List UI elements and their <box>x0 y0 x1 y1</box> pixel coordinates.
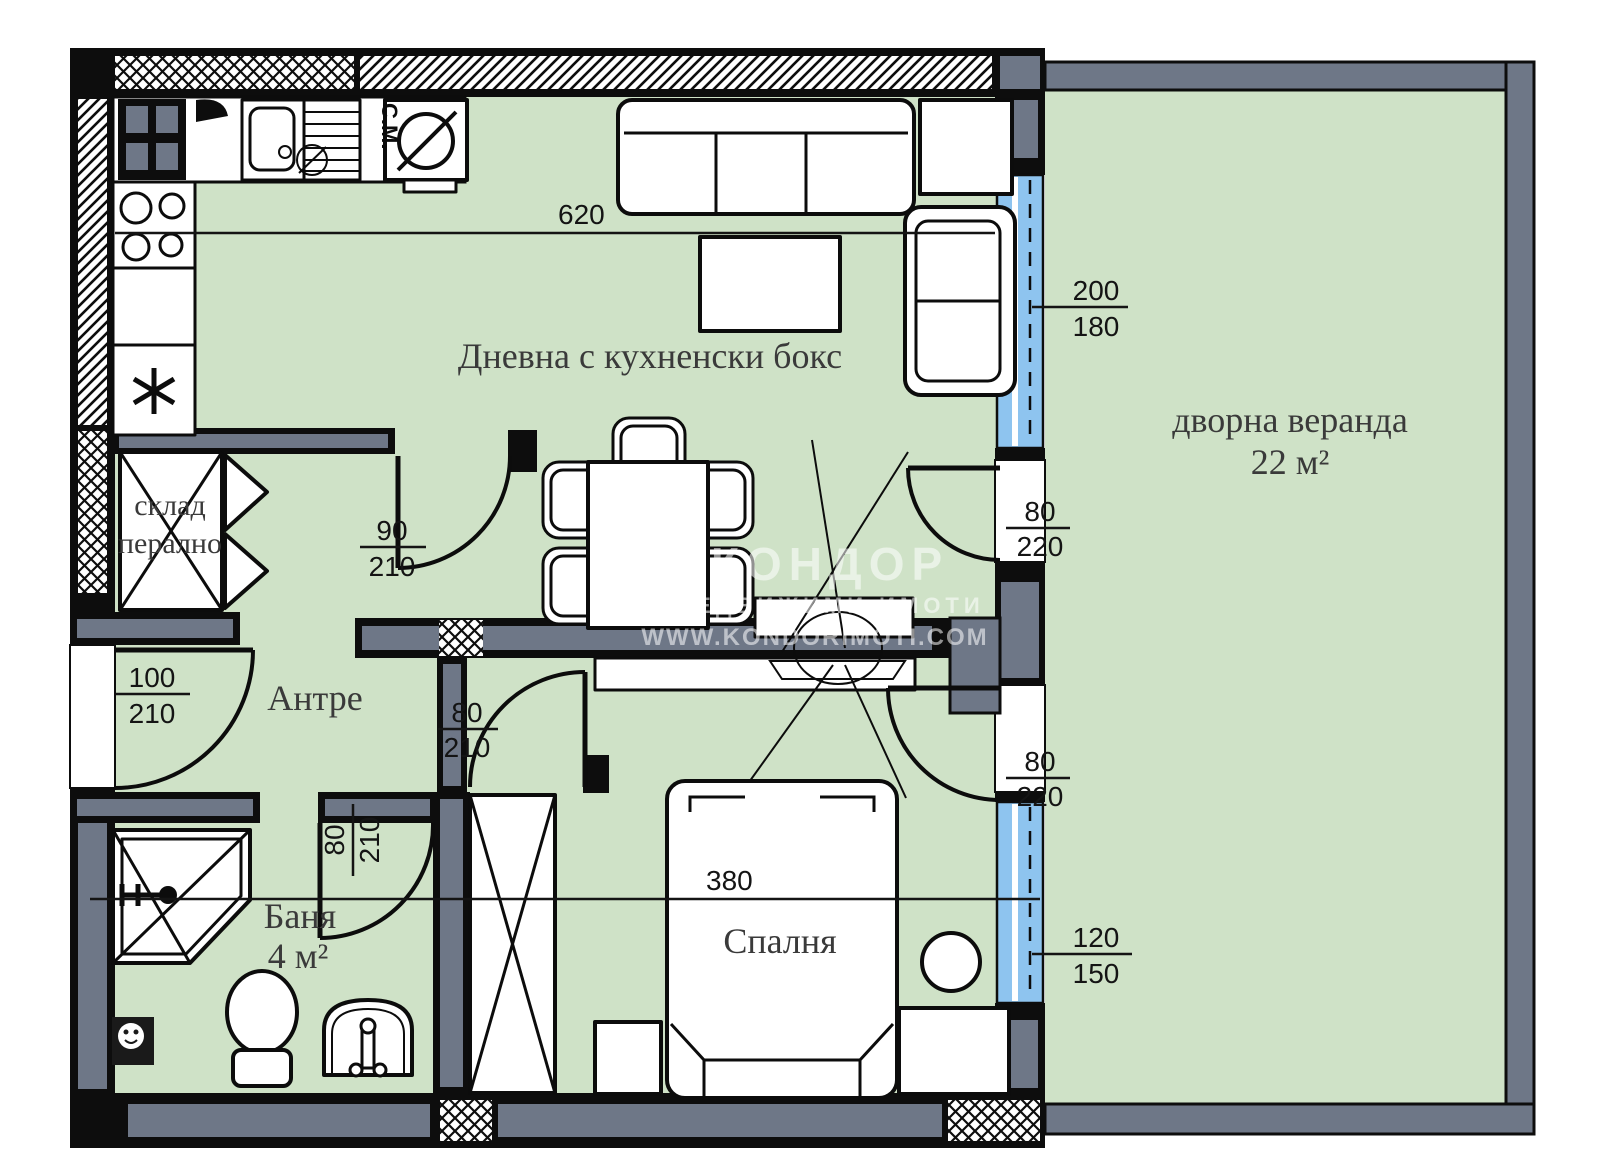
wall-bottom-core-left <box>128 1104 430 1137</box>
fridge-icon <box>113 345 195 435</box>
wall-bottom-crosshatch-2 <box>440 1100 492 1141</box>
bedroom-label: Спалня <box>723 921 836 961</box>
bath-bedroom-wall-core <box>440 799 463 1087</box>
antre-label: Антре <box>267 678 362 718</box>
sofa-icon <box>618 100 914 214</box>
svg-text:150: 150 <box>1073 958 1120 989</box>
wall-column-crosshatch <box>439 620 483 656</box>
wall-right-seg2 <box>995 562 1045 575</box>
watermark-subtitle: НЕДВИЖИМИ ИМОТИ <box>675 593 984 618</box>
kitchen-cabinet <box>113 268 195 345</box>
drainboard-icon <box>297 100 360 180</box>
sink-icon <box>242 100 304 180</box>
svg-text:210: 210 <box>129 698 176 729</box>
veranda-area: 22 м² <box>1251 442 1330 482</box>
wall-left-crosshatch <box>78 431 107 593</box>
veranda-wall-top <box>1045 62 1534 90</box>
bath-top-wall-right-core <box>325 799 430 816</box>
svg-text:80: 80 <box>451 697 482 728</box>
veranda-label: дворна веранда <box>1172 400 1408 440</box>
coffee-table-icon <box>700 237 840 331</box>
dim-620: 620 <box>558 199 605 230</box>
boiler-icon <box>112 1017 154 1065</box>
armchair-icon <box>905 207 1015 395</box>
wall-left-hatch <box>78 99 107 425</box>
door-living-stub <box>508 430 537 472</box>
bath-top-wall-left-core <box>77 799 253 816</box>
floor-plan-page: С.М. <box>0 0 1600 1167</box>
svg-text:220: 220 <box>1017 781 1064 812</box>
hob-icon <box>118 99 186 180</box>
svg-text:80: 80 <box>1024 746 1055 777</box>
svg-text:С.М.: С.М. <box>377 103 402 149</box>
dim-380: 380 <box>706 865 753 896</box>
entrance-opening <box>70 645 115 788</box>
svg-text:120: 120 <box>1073 922 1120 953</box>
wall-top-hatch <box>360 56 992 89</box>
window1-sill-bottom <box>995 448 1045 460</box>
svg-text:90: 90 <box>376 515 407 546</box>
wardrobe-icon <box>470 795 555 1093</box>
svg-text:210: 210 <box>444 732 491 763</box>
bedroom-window <box>997 802 1043 1003</box>
desk-icon <box>899 1008 1009 1094</box>
watermark-url: WWW.KONDORIMOTI.COM <box>641 624 988 651</box>
veranda-wall-right <box>1506 62 1534 1134</box>
toilet-icon <box>227 971 297 1086</box>
side-table-icon <box>920 100 1012 194</box>
nightstand-icon <box>595 1022 661 1094</box>
svg-text:200: 200 <box>1073 275 1120 306</box>
washing-machine-label: С.М. <box>377 103 402 149</box>
wall-left-lower-core <box>78 797 107 1089</box>
bath-label: Баня <box>264 896 336 936</box>
wall-bottom-core-right <box>498 1104 942 1137</box>
svg-text:80: 80 <box>319 824 350 855</box>
living-label: Дневна с кухненски бокс <box>458 336 842 376</box>
bath-area: 4 м² <box>268 936 329 976</box>
svg-text:210: 210 <box>354 817 385 864</box>
storage-label-2: перално <box>118 527 222 560</box>
wall-top-column <box>1000 56 1040 89</box>
wall-bottom-crosshatch-3 <box>948 1100 1040 1141</box>
washbasin-icon <box>324 1000 412 1076</box>
svg-text:80: 80 <box>1024 496 1055 527</box>
watermark-brand: КОНДОР <box>711 538 949 590</box>
veranda-wall-bottom <box>1045 1104 1534 1134</box>
stove-icon <box>113 182 195 268</box>
svg-text:210: 210 <box>369 551 416 582</box>
svg-text:100: 100 <box>129 662 176 693</box>
svg-text:220: 220 <box>1017 531 1064 562</box>
storage-label-1: склад <box>134 489 205 522</box>
wall-right-seg3-core <box>1001 582 1039 678</box>
floor-plan-drawing: С.М. <box>0 0 1600 1167</box>
storage-bottom-wall-core <box>77 619 233 638</box>
wall-top-crosshatch <box>78 56 354 89</box>
window-frame-stripe <box>1012 804 1018 1001</box>
stool-icon <box>922 933 980 991</box>
svg-text:180: 180 <box>1073 311 1120 342</box>
